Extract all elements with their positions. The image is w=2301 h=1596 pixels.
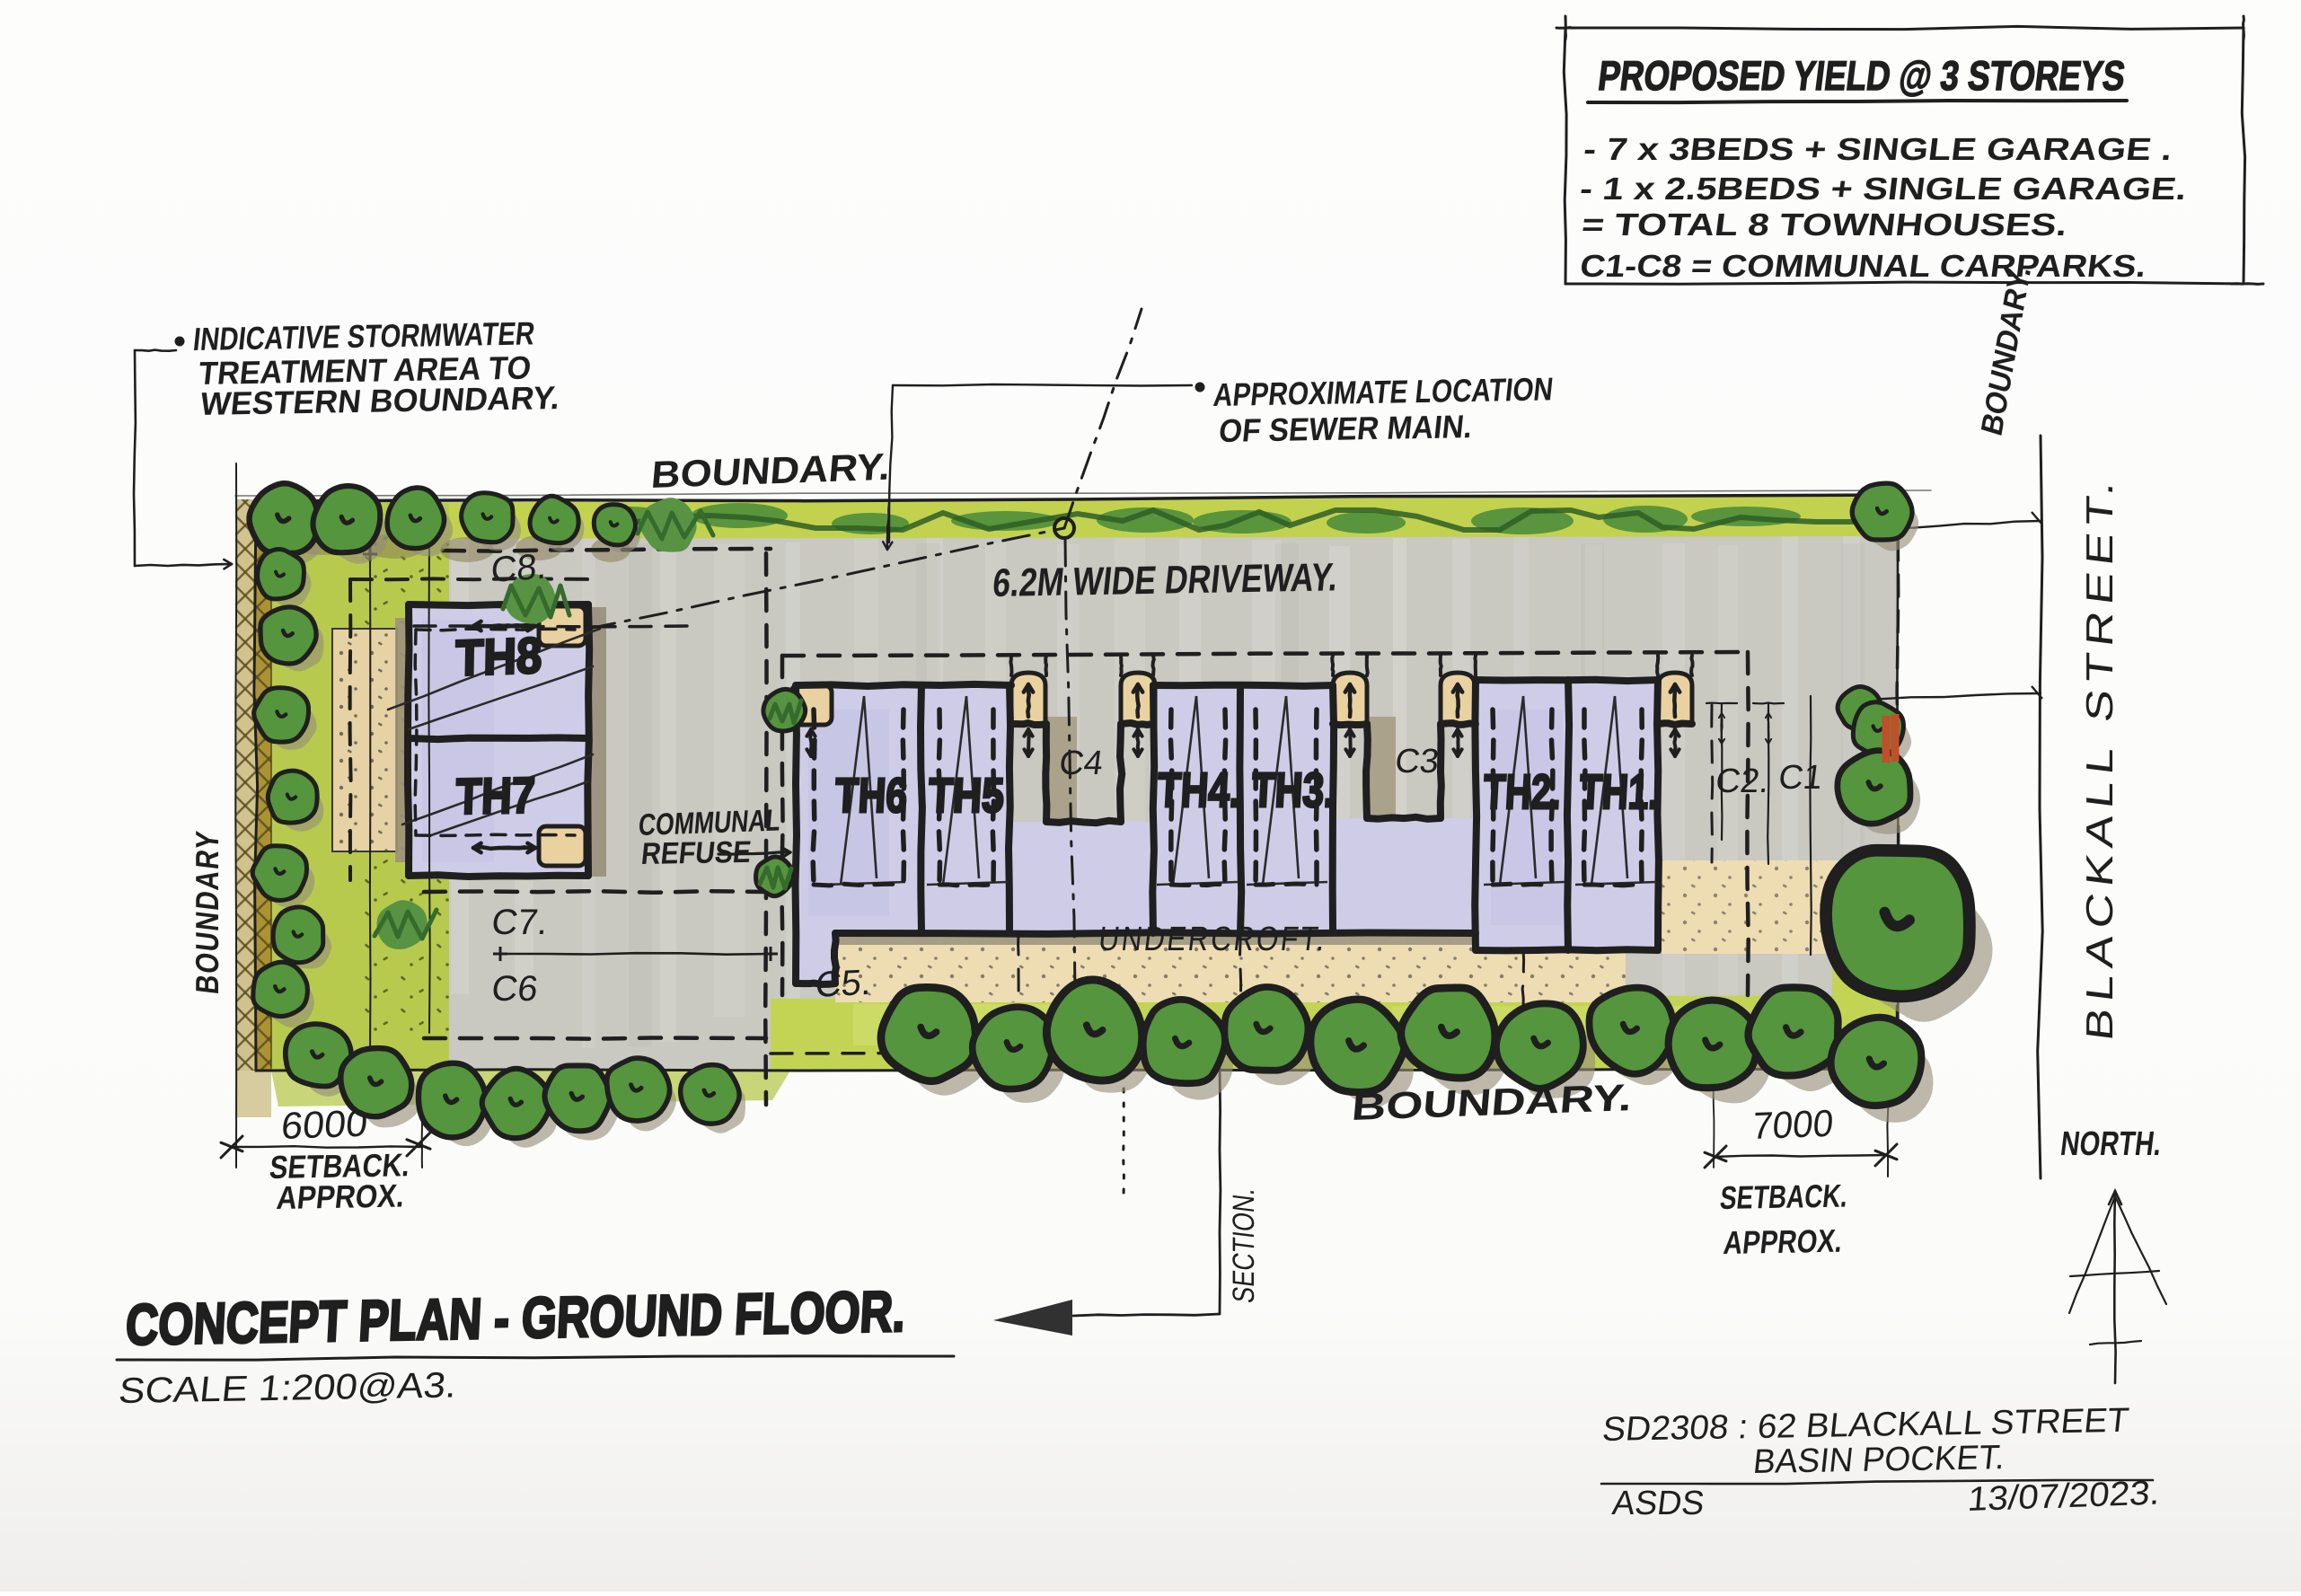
svg-text:PROPOSED YIELD @ 3 STOREYS: PROPOSED YIELD @ 3 STOREYS <box>1596 52 2128 99</box>
svg-text:C1: C1 <box>1776 758 1825 797</box>
svg-text:C5.: C5. <box>814 962 872 1005</box>
svg-text:TH1.: TH1. <box>1578 765 1660 819</box>
svg-text:- 7 x 3BEDS + SINGLE GARAGE .: - 7 x 3BEDS + SINGLE GARAGE . <box>1582 132 2174 167</box>
svg-text:C2.: C2. <box>1714 762 1771 800</box>
svg-text:APPROX.: APPROX. <box>1722 1222 1844 1261</box>
svg-text:TH5: TH5 <box>927 769 1005 823</box>
svg-text:BOUNDARY.: BOUNDARY. <box>649 445 892 496</box>
svg-text:BLACKALL STREET.: BLACKALL STREET. <box>2078 472 2120 1043</box>
svg-text:BOUNDARY: BOUNDARY <box>189 828 225 996</box>
svg-text:C1-C8 = COMMUNAL CARPARKS.: C1-C8 = COMMUNAL CARPARKS. <box>1578 249 2148 284</box>
svg-text:SETBACK.: SETBACK. <box>1718 1177 1849 1216</box>
svg-text:TH6: TH6 <box>833 769 908 823</box>
svg-text:APPROXIMATE LOCATION: APPROXIMATE LOCATION <box>1212 370 1555 413</box>
svg-text:C7.: C7. <box>489 902 551 942</box>
svg-text:6000: 6000 <box>279 1102 369 1147</box>
svg-text:TH2.: TH2. <box>1482 765 1562 819</box>
svg-text:UNDERCROFT.: UNDERCROFT. <box>1097 920 1329 958</box>
svg-text:APPROX.: APPROX. <box>275 1177 406 1216</box>
svg-text:C3: C3 <box>1393 742 1441 780</box>
svg-text:ASDS: ASDS <box>1610 1484 1706 1522</box>
svg-text:CONCEPT PLAN - GROUND FLOOR.: CONCEPT PLAN - GROUND FLOOR. <box>124 1279 907 1357</box>
svg-text:TH4.: TH4. <box>1156 763 1241 817</box>
svg-text:BASIN POCKET.: BASIN POCKET. <box>1751 1438 2006 1481</box>
svg-text:= TOTAL 8 TOWNHOUSES.: = TOTAL 8 TOWNHOUSES. <box>1580 207 2069 242</box>
svg-text:13/07/2023.: 13/07/2023. <box>1966 1474 2162 1519</box>
svg-text:6.2M WIDE DRIVEWAY.: 6.2M WIDE DRIVEWAY. <box>991 555 1340 605</box>
svg-text:NORTH.: NORTH. <box>2059 1124 2164 1163</box>
svg-text:- 1 x 2.5BEDS + SINGLE GARAGE.: - 1 x 2.5BEDS + SINGLE GARAGE. <box>1578 172 2189 207</box>
svg-text:OF SEWER MAIN.: OF SEWER MAIN. <box>1217 408 1474 449</box>
svg-text:SECTION.: SECTION. <box>1227 1186 1261 1305</box>
svg-text:WESTERN BOUNDARY.: WESTERN BOUNDARY. <box>198 379 561 422</box>
svg-text:C8.: C8. <box>490 546 548 590</box>
svg-text:C4: C4 <box>1057 744 1106 782</box>
svg-text:TH8: TH8 <box>455 627 542 686</box>
svg-text:TH7: TH7 <box>455 766 536 824</box>
svg-text:SCALE 1:200@A3.: SCALE 1:200@A3. <box>117 1365 459 1411</box>
svg-text:TH3.: TH3. <box>1250 763 1336 817</box>
svg-text:REFUSE: REFUSE <box>639 835 753 871</box>
svg-text:7000: 7000 <box>1750 1102 1835 1147</box>
svg-text:C6: C6 <box>489 968 541 1009</box>
